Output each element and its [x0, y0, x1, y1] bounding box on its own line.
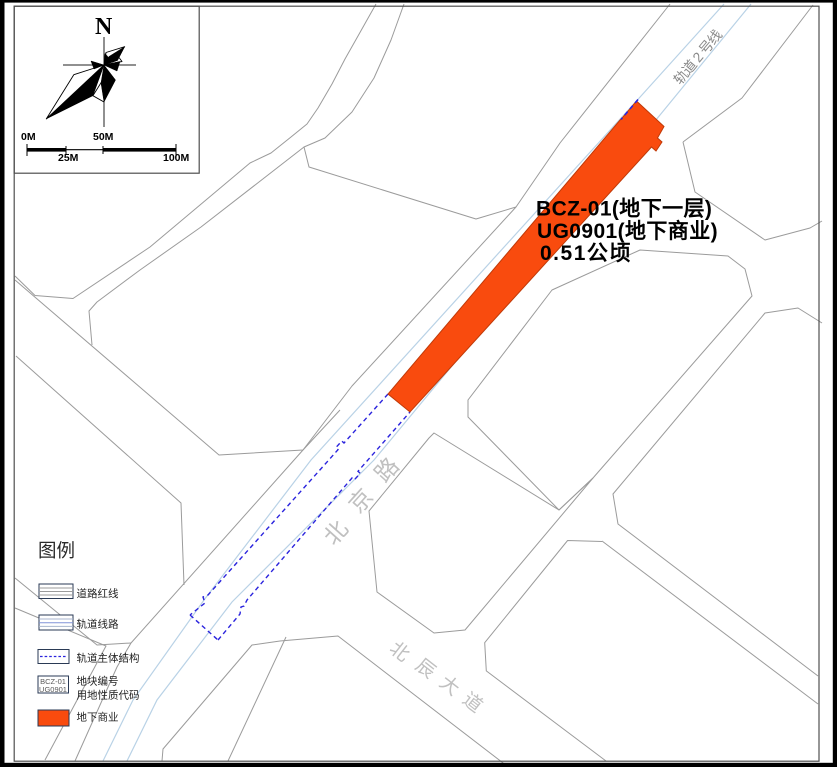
svg-text:UG0901: UG0901 [39, 685, 67, 694]
svg-text:0M: 0M [21, 131, 36, 143]
svg-text:用地性质代码: 用地性质代码 [77, 689, 140, 702]
svg-text:UG0901(地下商业): UG0901(地下商业) [537, 219, 718, 243]
svg-text:地块编号: 地块编号 [77, 675, 119, 688]
svg-text:N: N [95, 14, 113, 40]
svg-text:图例: 图例 [38, 540, 75, 561]
svg-text:轨道主体结构: 轨道主体结构 [77, 652, 140, 665]
svg-text:地下商业: 地下商业 [77, 711, 119, 724]
svg-text:道路红线: 道路红线 [77, 587, 119, 600]
svg-text:0.51公顷: 0.51公顷 [540, 242, 632, 265]
svg-text:25M: 25M [58, 152, 79, 164]
svg-text:BCZ-01(地下一层): BCZ-01(地下一层) [536, 197, 712, 221]
svg-text:轨道线路: 轨道线路 [77, 618, 119, 631]
svg-text:50M: 50M [93, 131, 114, 143]
